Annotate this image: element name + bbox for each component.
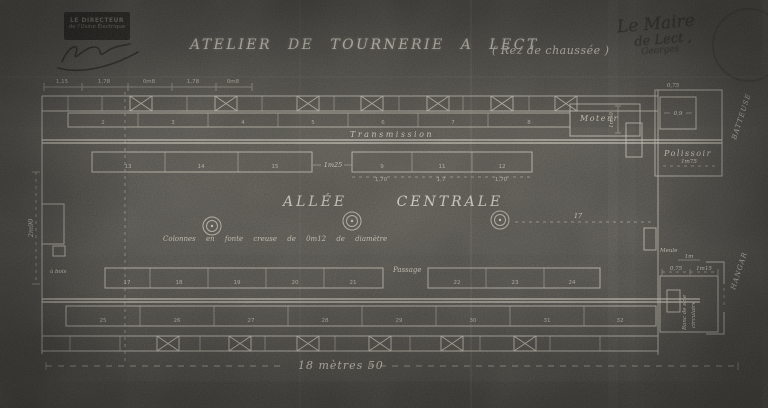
annex-inner-dim: 0,9 bbox=[674, 111, 683, 117]
machine-number: 6 bbox=[381, 120, 385, 126]
meule-block bbox=[644, 228, 656, 250]
machine-number: 23 bbox=[512, 280, 519, 286]
allee-centrale-label: ALLÉE CENTRALE bbox=[281, 192, 503, 210]
machine-number: 26 bbox=[174, 318, 181, 324]
annex-top-dim: 0,75 bbox=[667, 83, 680, 89]
transmission-label: Transmission bbox=[350, 130, 434, 139]
machine-number: 11 bbox=[439, 164, 446, 170]
window-cross-icon bbox=[215, 96, 237, 111]
machine-number: 3 bbox=[171, 120, 175, 126]
saw-dim-b: 1m15 bbox=[696, 266, 712, 272]
machine-number: 31 bbox=[544, 318, 551, 324]
machine-number: 18 bbox=[176, 280, 183, 286]
column-circle bbox=[343, 212, 361, 230]
bench-row-1 bbox=[68, 113, 570, 127]
machine-number: 17 bbox=[124, 280, 131, 286]
machine-number: 13 bbox=[125, 164, 132, 170]
window-cross-icon bbox=[157, 336, 179, 351]
window-cross-icon bbox=[130, 96, 152, 111]
machine-number: 24 bbox=[569, 280, 576, 286]
window-cross-icon bbox=[427, 96, 449, 111]
column-circle bbox=[203, 217, 221, 235]
machine-number: 25 bbox=[100, 318, 107, 324]
polissoir-width-dim: 1m75 bbox=[681, 159, 697, 165]
left-width-dim: 2m90 bbox=[27, 219, 35, 239]
center-span-dim: 17 bbox=[574, 212, 583, 220]
dim-label: 1,7 bbox=[437, 177, 446, 183]
machine-number: 20 bbox=[292, 280, 299, 286]
machine-number: 22 bbox=[454, 280, 461, 286]
machine-number: 9 bbox=[380, 164, 384, 170]
bench-row-3-left bbox=[105, 268, 383, 288]
machine-number: 8 bbox=[527, 120, 531, 126]
hangar-label: HANGAR bbox=[729, 251, 749, 292]
machine-number: 28 bbox=[322, 318, 329, 324]
machine-number: 32 bbox=[617, 318, 624, 324]
blueprint-photo: LE DIRECTEUR de l'Usine Électrique ATELI… bbox=[0, 0, 768, 408]
meule-label: Meule bbox=[659, 248, 678, 254]
window-cross-icon bbox=[441, 336, 463, 351]
window-cross-icon bbox=[491, 96, 513, 111]
dim-label: 1,70 bbox=[375, 177, 388, 183]
top-dimension-labels: 1,151,780m81,780m8 bbox=[56, 79, 240, 85]
batteuse-label: BATTEUSE bbox=[730, 92, 753, 141]
window-cross-icon bbox=[297, 96, 319, 111]
machine-number: 29 bbox=[396, 318, 403, 324]
saw-dim-a: 0,75 bbox=[670, 266, 683, 272]
polissoir-label: Polissoir bbox=[663, 149, 712, 158]
window-crosses-top bbox=[130, 96, 577, 111]
machine-number: 7 bbox=[451, 120, 455, 126]
dim-label: 1,78 bbox=[98, 79, 111, 85]
window-cross-icon bbox=[361, 96, 383, 111]
window-cross-icon bbox=[297, 336, 319, 351]
window-cross-icon bbox=[369, 336, 391, 351]
machine-number: 27 bbox=[248, 318, 255, 324]
overall-length-dim: 18 mètres 50 bbox=[298, 359, 384, 372]
dim-label: 1,70 bbox=[495, 177, 508, 183]
dim-label: 0m8 bbox=[227, 79, 240, 85]
window-crosses-bottom bbox=[157, 336, 536, 351]
a-bois-label: à bois bbox=[50, 268, 67, 275]
machine-number: 4 bbox=[241, 120, 245, 126]
machine-number: 15 bbox=[272, 164, 279, 170]
aisle-gap-dim: 1m25 bbox=[324, 161, 343, 169]
machine-number: 19 bbox=[234, 280, 241, 286]
machine-number: 12 bbox=[499, 164, 506, 170]
machine-number: 2 bbox=[101, 120, 105, 126]
banc-de-scie-label: Banc de scie bbox=[682, 294, 688, 331]
column-circle bbox=[491, 211, 509, 229]
machine-number: 30 bbox=[470, 318, 477, 324]
row2-dimension-labels: 1,701,71,70 bbox=[375, 177, 508, 183]
moteur-room bbox=[570, 104, 642, 157]
passage-label: Passage bbox=[392, 266, 422, 274]
bench-row-4 bbox=[66, 306, 656, 326]
colonnes-note: Colonnes en fonte creuse de 0m12 de diam… bbox=[163, 235, 387, 243]
dim-label: 0m8 bbox=[143, 79, 156, 85]
dim-label: 1,15 bbox=[56, 79, 69, 85]
machine-number: 5 bbox=[311, 120, 315, 126]
plan-drawing: Transmission ALLÉE CENTRALE Colonnes en … bbox=[0, 0, 768, 408]
machine-number: 21 bbox=[350, 280, 357, 286]
banc-de-scie-label2: circulaire bbox=[691, 300, 697, 328]
moteur-height-dim: 1m50 bbox=[609, 112, 615, 128]
saw-dim-c: 1m bbox=[685, 254, 694, 260]
dim-label: 1,78 bbox=[187, 79, 200, 85]
machine-number: 14 bbox=[198, 164, 205, 170]
cast-iron-columns bbox=[203, 211, 509, 235]
window-cross-icon bbox=[229, 336, 251, 351]
window-cross-icon bbox=[514, 336, 536, 351]
